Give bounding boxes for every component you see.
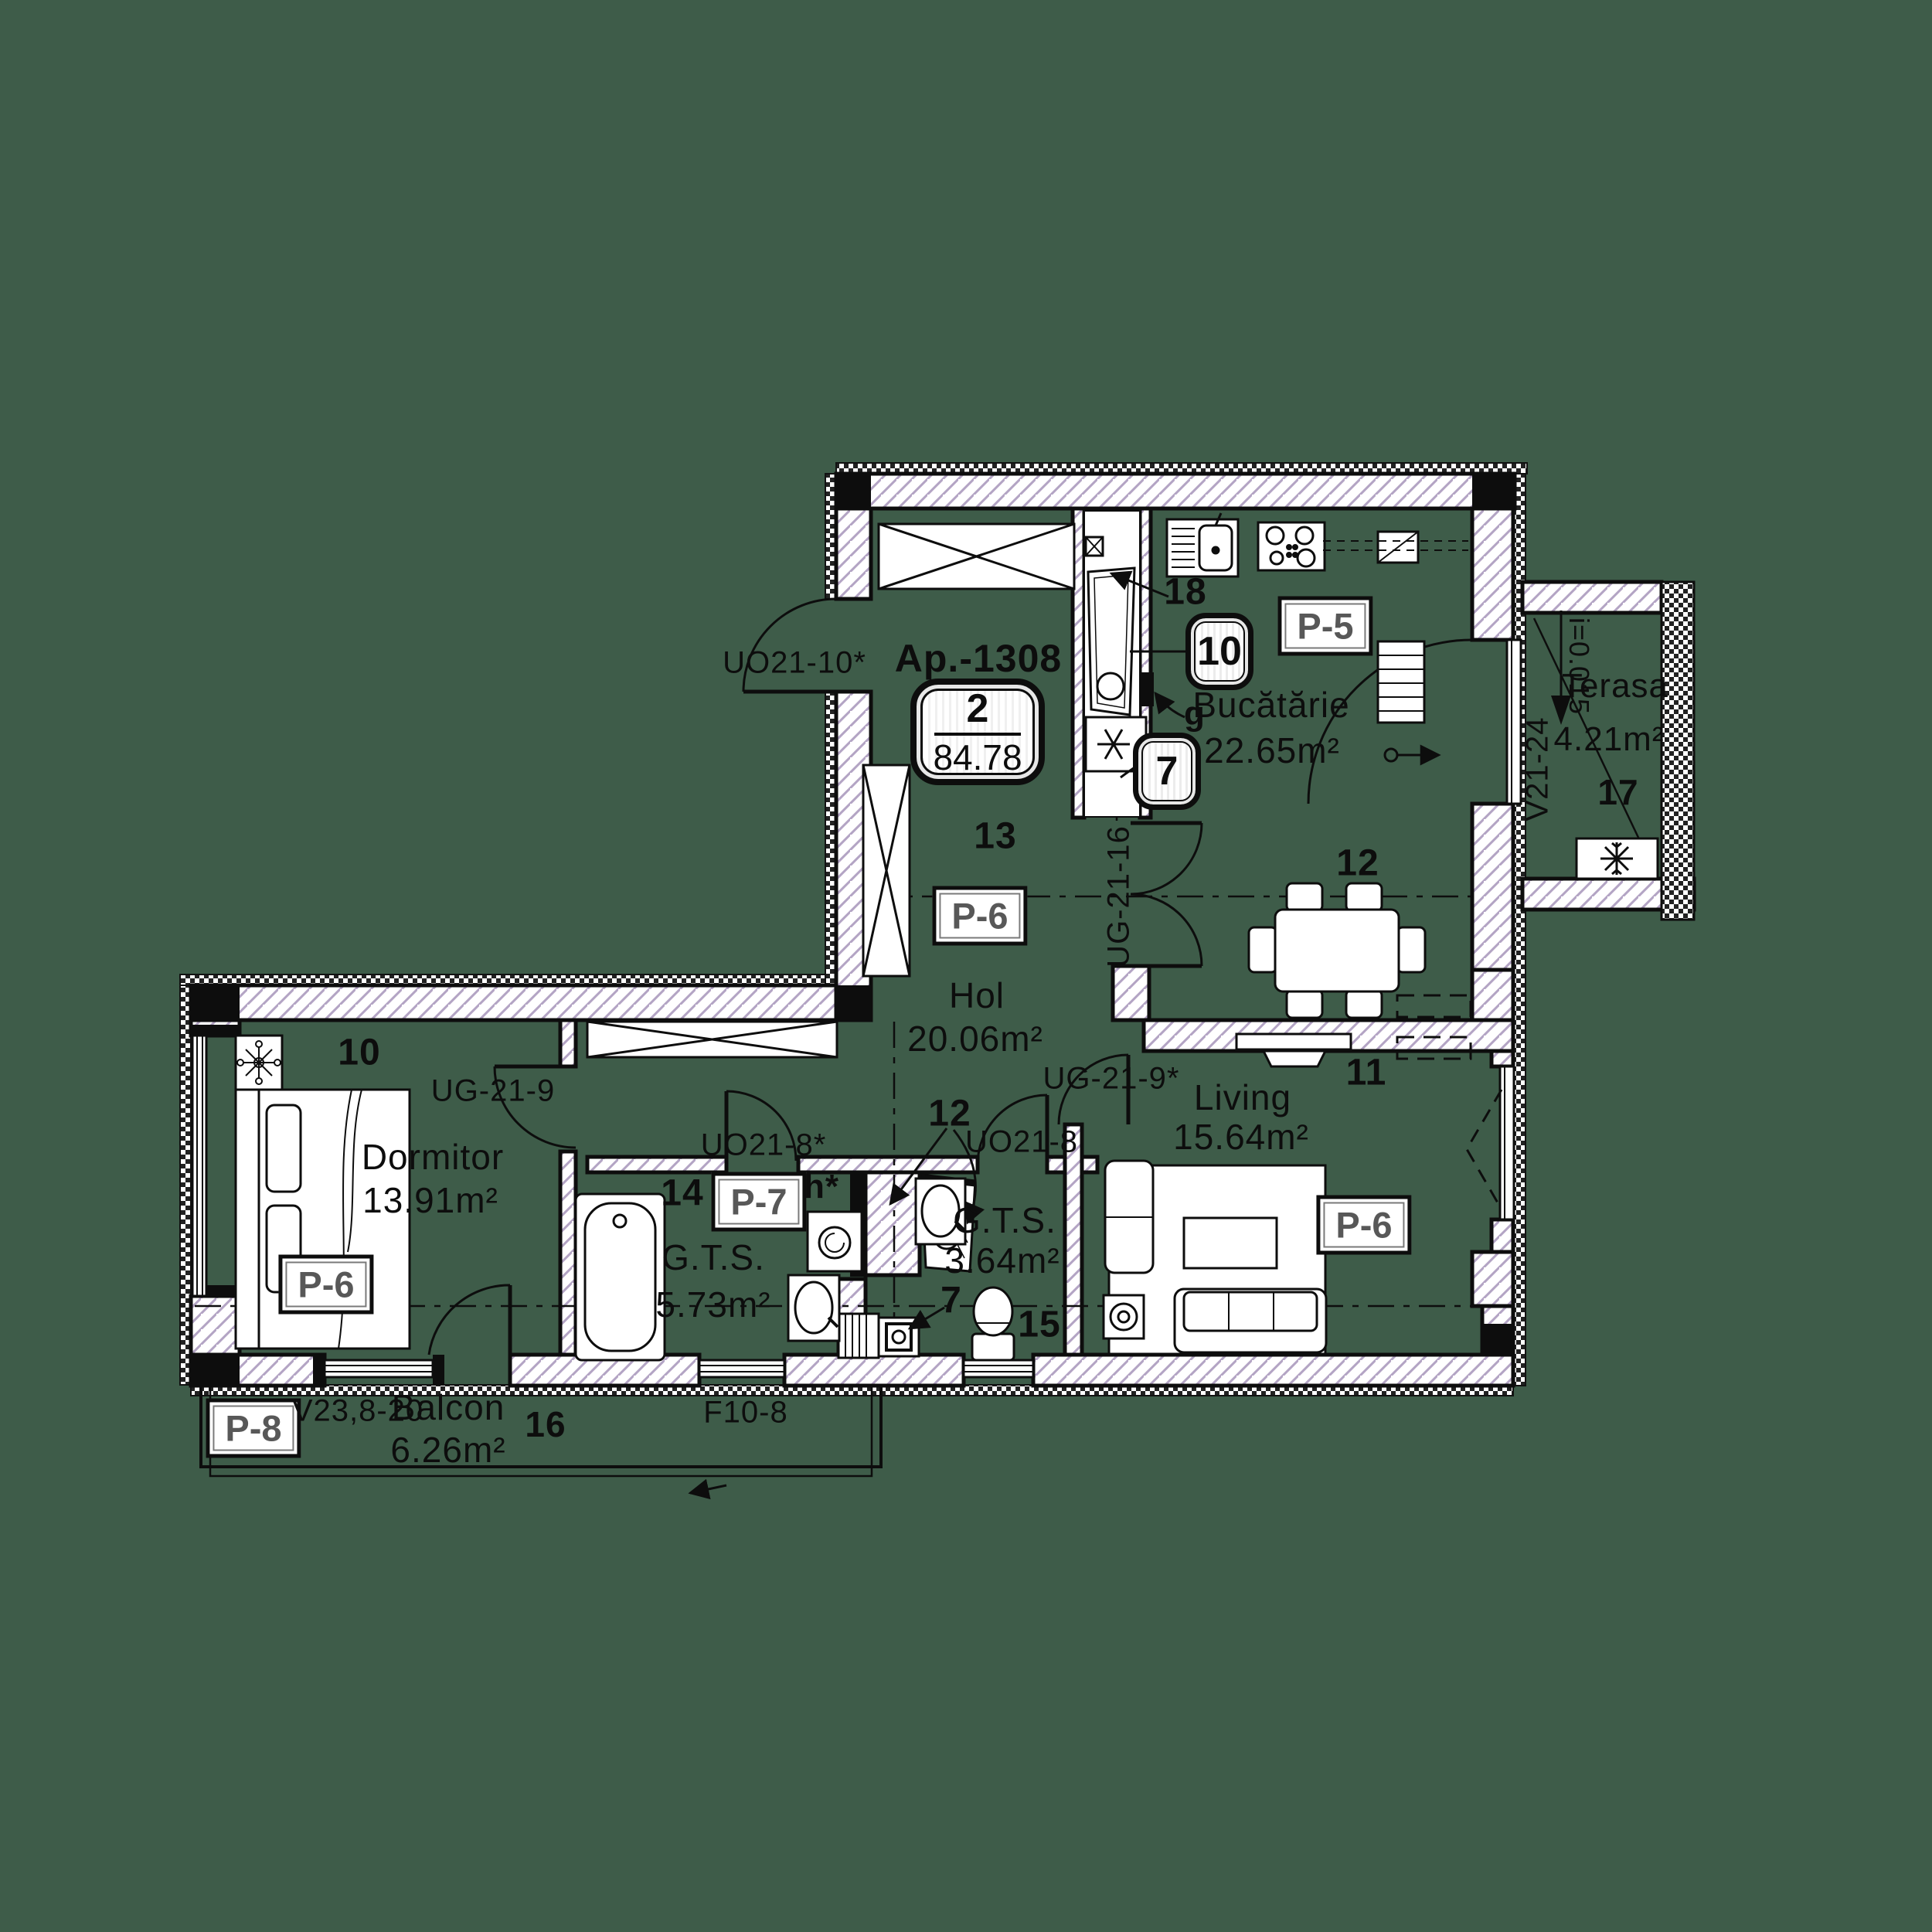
living-name: Living: [1194, 1077, 1291, 1118]
gts1-area: 5.73m²: [655, 1284, 770, 1325]
bucatarie-area: 22.65m²: [1204, 730, 1340, 771]
tv-stand-icon: [1236, 1034, 1351, 1066]
balcon-area: 6.26m²: [390, 1429, 505, 1471]
kitchen-corner-unit: [1323, 532, 1468, 563]
snowflake-icon: [1600, 842, 1633, 875]
gts1-number: 14: [661, 1172, 703, 1215]
hol-number: 13: [974, 815, 1016, 858]
apartment-title: Ap.-1308: [895, 636, 1062, 681]
toilet-icon: [972, 1287, 1014, 1360]
apartment-rooms-count: 2: [967, 688, 989, 730]
plant-table-icon: [1104, 1295, 1144, 1338]
gts2-door-label: UO21-8: [965, 1125, 1078, 1160]
floor-drain-number: 7: [940, 1280, 962, 1322]
terasa-area: 4.21m²: [1554, 720, 1665, 759]
dormitor-area: 13.91m²: [362, 1179, 498, 1221]
gts2-window: [964, 1360, 1033, 1377]
dormitor-finish-badge: P-6: [278, 1255, 373, 1315]
terasa-name: Terasa: [1562, 667, 1668, 706]
living-window: [1467, 1066, 1514, 1219]
floor-plan-canvas: Ap.-1308 2 84.78 UO21-10* 13 P-6 Hol 20.…: [0, 0, 1932, 1932]
hol-finish-badge: P-6: [932, 886, 1027, 946]
terasa-railing: [1662, 582, 1694, 920]
entrance-door-label: UO21-10*: [723, 646, 866, 681]
hol-name: Hol: [949, 975, 1005, 1016]
dormitor-window: [192, 1036, 206, 1296]
dormitor-number: 10: [338, 1032, 380, 1074]
gts2-number: 15: [1018, 1304, 1060, 1346]
bathtub-icon: [576, 1194, 665, 1360]
gts1-name: G.T.S.: [662, 1236, 765, 1278]
bucatarie-number: 12: [1336, 842, 1379, 885]
bucatarie-name: Bucătărie: [1192, 684, 1349, 726]
balcony-window-f10: [699, 1360, 784, 1377]
balcon-finish-badge: P-8: [206, 1399, 301, 1458]
living-door-label: UG-21-9*: [1043, 1062, 1180, 1097]
kitchen-sink-icon: [1167, 513, 1238, 577]
gts2-area: 3.64m²: [944, 1240, 1060, 1281]
gts2-name: G.T.S.: [953, 1199, 1056, 1241]
gts1-finish-badge: P-7: [711, 1172, 806, 1232]
apartment-total-area: 84.78: [933, 739, 1022, 776]
dining-table-icon: [1249, 883, 1425, 1018]
terasa-number: 17: [1597, 771, 1638, 813]
dormitor-door-label: UG-21-9: [431, 1074, 555, 1109]
hall-niche-marker: h*: [804, 1168, 839, 1206]
living-area: 15.64m²: [1173, 1116, 1309, 1158]
balcon-name: Balcon: [392, 1386, 505, 1428]
balcony-window-v23: [325, 1360, 433, 1377]
corridor-wardrobe: [587, 1022, 837, 1057]
terasa-door-leaf-cabinet: [1378, 641, 1424, 723]
terasa-window-label: V21-24: [1521, 717, 1556, 821]
riser-badge-hall: 7: [1133, 733, 1201, 810]
sink-icon-gts1: [788, 1275, 839, 1341]
drain-icon: [893, 1331, 905, 1343]
floor-plan-drawing: [0, 0, 1932, 1932]
washing-machine-icon: [808, 1212, 862, 1271]
kitchen-shaft-number: 18: [1164, 571, 1206, 614]
hol-area: 20.06m²: [907, 1018, 1043, 1060]
balcon-number: 16: [525, 1403, 566, 1445]
living-number: 11: [1346, 1052, 1387, 1094]
hall-wardrobe-tall: [863, 765, 910, 976]
living-finish-badge: P-6: [1316, 1196, 1411, 1255]
kitchen-door-label: UG-21-16: [1102, 825, 1137, 968]
stove-icon: [1258, 522, 1325, 570]
apartment-badge: 2 84.78: [910, 679, 1045, 785]
dormitor-balcony-door: [429, 1285, 510, 1355]
dormitor-name: Dormitor: [362, 1136, 504, 1178]
balcony-window-label: F10-8: [703, 1396, 788, 1430]
hall-wardrobe-top: [879, 524, 1074, 589]
kitchen-exit-arrow: [1385, 749, 1439, 761]
gts1-door-label: UO21-8*: [701, 1128, 827, 1163]
riser-badge-kitchen: 10: [1185, 613, 1253, 690]
terasa-door-window: [1507, 640, 1521, 804]
coffee-table-icon: [1184, 1218, 1277, 1268]
kitchen-double-door: [1131, 823, 1202, 966]
bucatarie-finish-badge: P-5: [1277, 597, 1372, 656]
gas-riser-icon: [1097, 673, 1124, 699]
floor-drain: [838, 1314, 919, 1358]
apartment-badge-divider: [934, 733, 1021, 736]
